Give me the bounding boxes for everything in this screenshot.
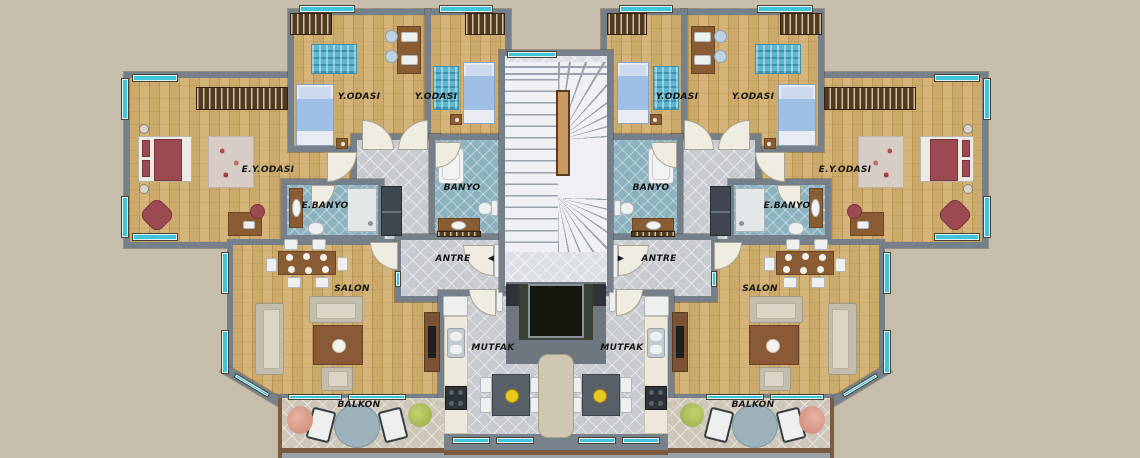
room-label-master-bedroom-left: E.Y.ODASI (242, 165, 295, 175)
room-label-balcony-left: BALKON (338, 400, 381, 410)
room-label-entry-left: ANTRE (435, 254, 470, 264)
room-label-ensuite-left: E.BANYO (302, 201, 349, 211)
room-label-balcony-right: BALKON (732, 400, 775, 410)
room-label-bedroom-left-2: Y.ODASI (415, 92, 457, 102)
room-label-master-bedroom-right: E.Y.ODASI (819, 165, 872, 175)
room-label-kitchen-right: MUTFAK (600, 343, 643, 353)
room-label-bedroom-left-1: Y.ODASI (338, 92, 380, 102)
room-label-ensuite-right: E.BANYO (764, 201, 811, 211)
room-label-entry-right: ANTRE (641, 254, 676, 264)
floor-plan: E.Y.ODASI E.Y.ODASI Y.ODASI Y.ODASI Y.OD… (0, 0, 1140, 458)
room-label-bedroom-right-1: Y.ODASI (656, 92, 698, 102)
entry-arrow-right-icon: ▶ (618, 254, 624, 263)
entry-arrow-left-icon: ◀ (488, 254, 494, 263)
room-label-bedroom-right-2: Y.ODASI (732, 92, 774, 102)
room-label-living-left: SALON (334, 284, 370, 294)
room-label-kitchen-left: MUTFAK (471, 343, 514, 353)
room-label-bathroom-right: BANYO (633, 183, 670, 193)
room-labels: E.Y.ODASI E.Y.ODASI Y.ODASI Y.ODASI Y.OD… (0, 0, 1140, 458)
room-label-living-right: SALON (742, 284, 778, 294)
room-label-bathroom-left: BANYO (444, 183, 481, 193)
